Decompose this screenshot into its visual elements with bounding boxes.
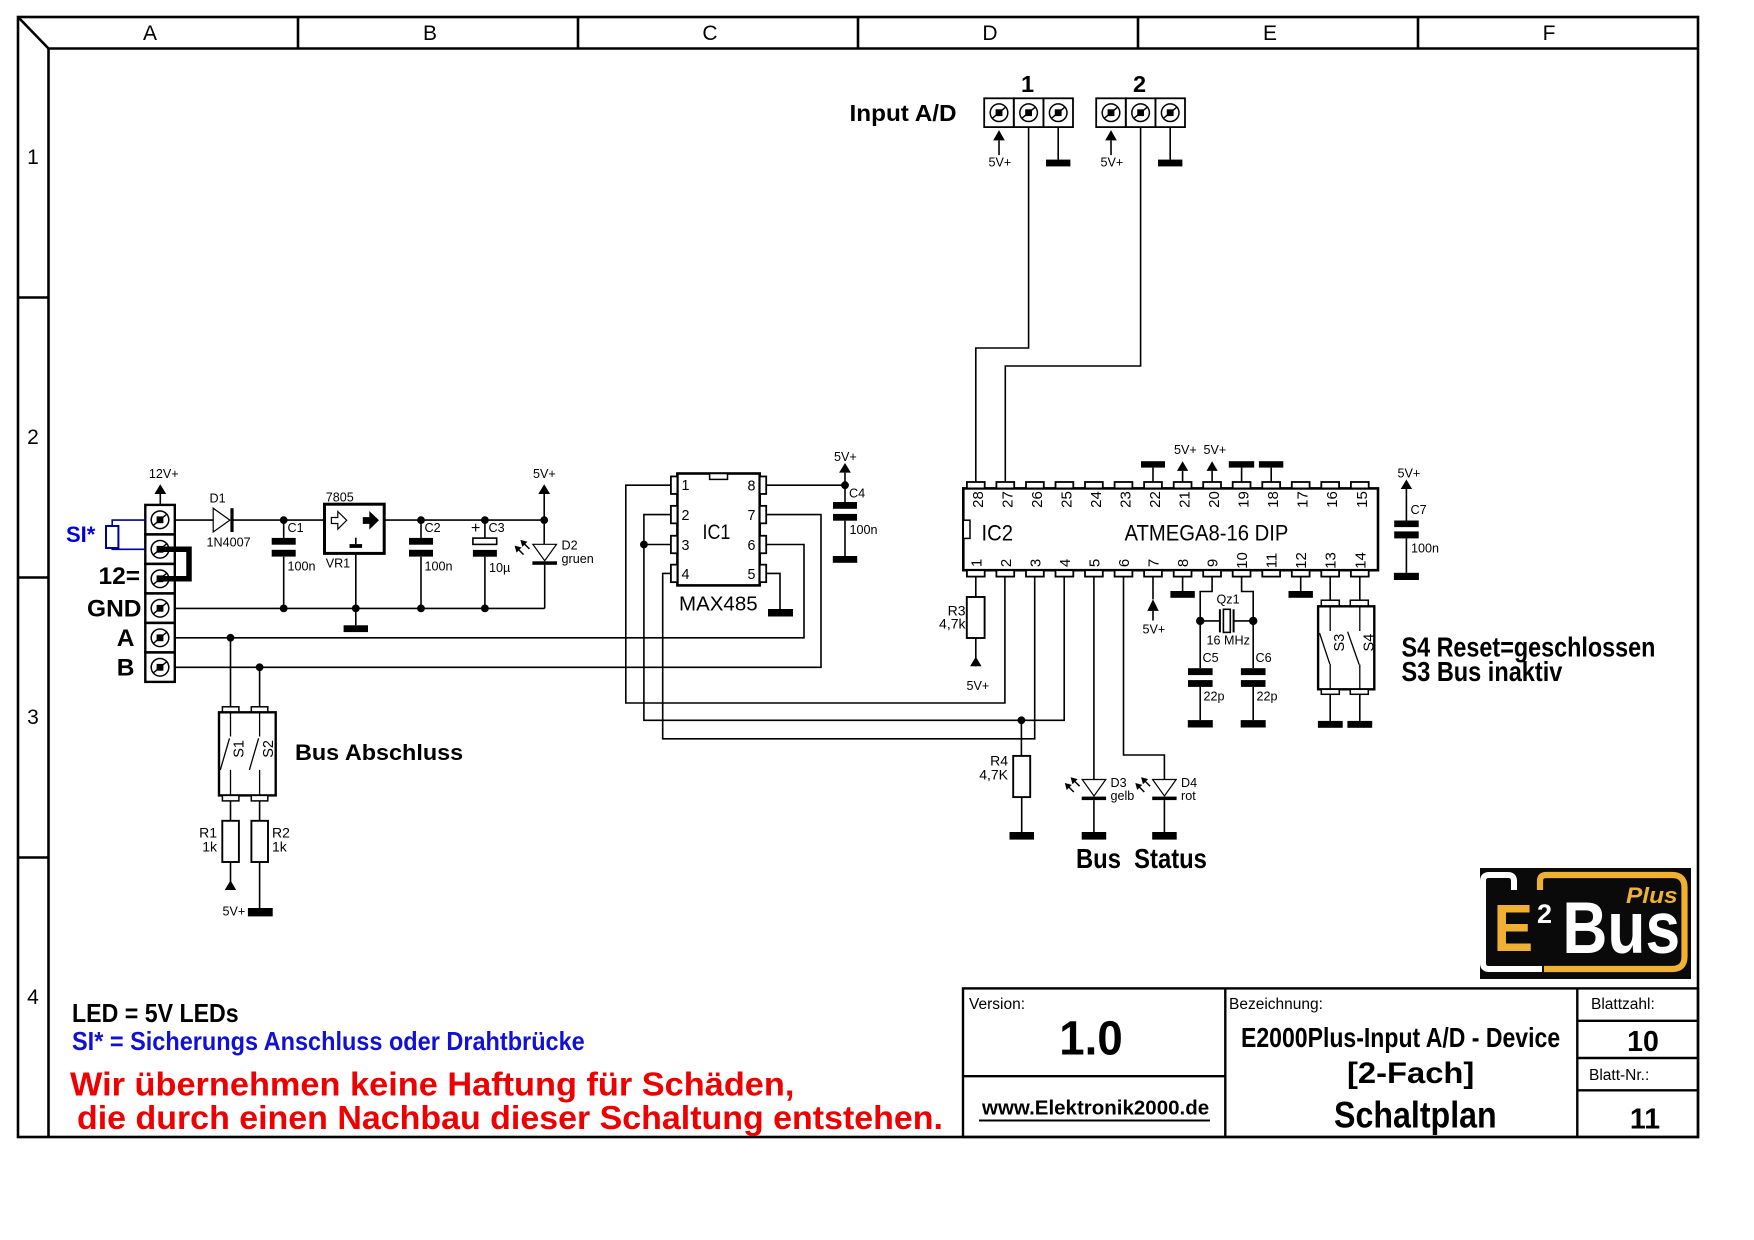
svg-text:Schaltplan: Schaltplan xyxy=(1334,1095,1497,1136)
svg-text:Bezeichnung:: Bezeichnung: xyxy=(1229,996,1323,1013)
svg-text:26: 26 xyxy=(1029,491,1046,508)
svg-text:VR1: VR1 xyxy=(326,557,351,571)
svg-text:1k: 1k xyxy=(272,839,288,855)
svg-text:16 MHz: 16 MHz xyxy=(1207,634,1250,648)
svg-text:SI* = Sicherungs Anschluss ode: SI* = Sicherungs Anschluss oder Drahtbrü… xyxy=(72,1028,585,1056)
svg-text:www.Elektronik2000.de: www.Elektronik2000.de xyxy=(981,1097,1209,1120)
svg-text:F: F xyxy=(1543,22,1556,45)
svg-text:[2-Fach]: [2-Fach] xyxy=(1347,1056,1474,1089)
svg-text:5: 5 xyxy=(748,567,756,583)
svg-text:C5: C5 xyxy=(1203,651,1219,665)
svg-text:5V+: 5V+ xyxy=(1101,156,1124,170)
svg-text:23: 23 xyxy=(1118,491,1135,508)
svg-text:11: 11 xyxy=(1630,1104,1660,1136)
svg-text:2: 2 xyxy=(1537,899,1552,929)
svg-text:25: 25 xyxy=(1058,491,1075,508)
svg-text:21: 21 xyxy=(1177,491,1194,508)
svg-text:5V+: 5V+ xyxy=(834,450,857,464)
svg-text:5V+: 5V+ xyxy=(1143,623,1166,637)
svg-text:4: 4 xyxy=(1057,559,1074,567)
svg-text:3: 3 xyxy=(682,538,690,554)
svg-text:4: 4 xyxy=(682,567,690,583)
svg-text:20: 20 xyxy=(1206,491,1223,508)
svg-text:1.0: 1.0 xyxy=(1059,1011,1122,1064)
svg-text:2: 2 xyxy=(27,426,39,449)
svg-text:2: 2 xyxy=(682,508,690,524)
svg-text:4: 4 xyxy=(27,986,39,1009)
svg-text:SI*: SI* xyxy=(66,522,96,547)
svg-text:10: 10 xyxy=(1627,1026,1659,1058)
svg-text:MAX485: MAX485 xyxy=(679,593,758,616)
svg-text:5: 5 xyxy=(1086,559,1103,567)
svg-text:S3: S3 xyxy=(1332,634,1348,652)
svg-text:IC1: IC1 xyxy=(703,521,731,545)
svg-text:5V+: 5V+ xyxy=(989,156,1012,170)
svg-text:gruen: gruen xyxy=(562,552,594,566)
svg-text:10µ: 10µ xyxy=(489,561,510,575)
svg-text:die durch einen Nachbau dieser: die durch einen Nachbau dieser Schaltung… xyxy=(77,1099,943,1137)
svg-text:C3: C3 xyxy=(489,521,505,535)
svg-text:C4: C4 xyxy=(849,487,865,501)
svg-text:18: 18 xyxy=(1265,491,1282,508)
svg-text:D4: D4 xyxy=(1181,776,1197,790)
svg-text:IC2: IC2 xyxy=(982,522,1013,546)
svg-text:Input A/D: Input A/D xyxy=(850,102,957,127)
svg-text:5V+: 5V+ xyxy=(1398,467,1421,481)
svg-text:5V+: 5V+ xyxy=(967,679,990,693)
svg-text:Version:: Version: xyxy=(969,996,1025,1013)
svg-text:gelb: gelb xyxy=(1111,789,1135,803)
svg-text:D1: D1 xyxy=(210,492,226,506)
svg-text:6: 6 xyxy=(748,538,756,554)
svg-text:3: 3 xyxy=(1027,559,1044,567)
svg-text:B: B xyxy=(423,22,437,45)
svg-text:1: 1 xyxy=(27,146,39,169)
svg-text:Blattzahl:: Blattzahl: xyxy=(1591,996,1655,1013)
svg-text:1: 1 xyxy=(968,559,985,567)
svg-text:E2000Plus-Input A/D - Device: E2000Plus-Input A/D - Device xyxy=(1241,1023,1560,1053)
svg-text:E: E xyxy=(1494,892,1534,966)
svg-text:5V+: 5V+ xyxy=(1174,443,1197,457)
svg-text:24: 24 xyxy=(1088,491,1105,508)
svg-text:12=: 12= xyxy=(98,563,140,590)
svg-text:10: 10 xyxy=(1234,552,1251,569)
svg-text:S3 Bus inaktiv: S3 Bus inaktiv xyxy=(1402,657,1564,687)
svg-text:C: C xyxy=(702,22,717,45)
svg-text:2: 2 xyxy=(998,559,1015,567)
svg-text:27: 27 xyxy=(999,491,1016,508)
svg-text:Qz1: Qz1 xyxy=(1217,593,1240,607)
svg-text:Wir übernehmen keine Haftung f: Wir übernehmen keine Haftung für Schäden… xyxy=(70,1066,794,1104)
svg-text:2: 2 xyxy=(1133,71,1146,97)
svg-text:9: 9 xyxy=(1205,559,1222,567)
svg-text:Blatt-Nr.:: Blatt-Nr.: xyxy=(1589,1067,1649,1084)
svg-text:E: E xyxy=(1263,22,1277,45)
svg-text:100n: 100n xyxy=(1411,542,1439,556)
svg-text:A: A xyxy=(117,625,135,652)
svg-text:S4: S4 xyxy=(1361,634,1377,652)
svg-text:B: B xyxy=(117,655,135,682)
svg-text:C7: C7 xyxy=(1411,503,1427,517)
svg-text:100n: 100n xyxy=(425,560,453,574)
svg-text:+: + xyxy=(471,520,480,537)
svg-text:100n: 100n xyxy=(288,560,316,574)
svg-text:7805: 7805 xyxy=(326,491,354,505)
svg-text:Plus: Plus xyxy=(1626,883,1678,908)
svg-text:D: D xyxy=(982,22,997,45)
svg-text:22p: 22p xyxy=(1204,690,1225,704)
svg-text:1N4007: 1N4007 xyxy=(207,536,251,550)
svg-text:16: 16 xyxy=(1324,491,1341,508)
svg-text:Bus Status: Bus Status xyxy=(1076,845,1207,875)
svg-text:5V+: 5V+ xyxy=(533,467,556,481)
svg-text:C6: C6 xyxy=(1256,651,1272,665)
svg-text:13: 13 xyxy=(1323,552,1340,569)
svg-text:17: 17 xyxy=(1295,491,1312,508)
svg-text:A: A xyxy=(143,22,157,45)
svg-text:8: 8 xyxy=(1175,559,1192,567)
svg-text:S1: S1 xyxy=(232,740,248,758)
svg-text:Bus Abschluss: Bus Abschluss xyxy=(295,740,463,765)
svg-text:12: 12 xyxy=(1293,552,1310,569)
svg-text:D3: D3 xyxy=(1111,776,1127,790)
svg-text:7: 7 xyxy=(748,508,756,524)
svg-text:3: 3 xyxy=(27,706,39,729)
svg-text:GND: GND xyxy=(87,596,141,623)
svg-text:8: 8 xyxy=(748,479,756,495)
svg-text:19: 19 xyxy=(1236,491,1253,508)
svg-text:15: 15 xyxy=(1354,491,1371,508)
svg-text:6: 6 xyxy=(1116,559,1133,567)
svg-text:14: 14 xyxy=(1352,552,1369,569)
svg-text:7: 7 xyxy=(1146,559,1163,567)
svg-text:1: 1 xyxy=(682,478,690,494)
svg-text:C1: C1 xyxy=(288,521,304,535)
svg-text:LED = 5V LEDs: LED = 5V LEDs xyxy=(72,1000,239,1029)
svg-text:1k: 1k xyxy=(202,839,218,855)
svg-text:4,7K: 4,7K xyxy=(979,767,1008,783)
svg-text:5V+: 5V+ xyxy=(223,905,246,919)
svg-text:5V+: 5V+ xyxy=(1204,443,1227,457)
svg-text:100n: 100n xyxy=(850,523,878,537)
svg-text:22p: 22p xyxy=(1257,690,1278,704)
svg-text:C2: C2 xyxy=(425,521,441,535)
svg-text:rot: rot xyxy=(1181,789,1196,803)
svg-text:ATMEGA8-16 DIP: ATMEGA8-16 DIP xyxy=(1125,521,1289,546)
svg-text:28: 28 xyxy=(970,491,987,508)
svg-text:S2: S2 xyxy=(261,740,277,758)
svg-text:D2: D2 xyxy=(562,539,578,553)
svg-text:4,7k: 4,7k xyxy=(939,616,966,632)
svg-text:11: 11 xyxy=(1264,553,1281,569)
svg-text:22: 22 xyxy=(1147,491,1164,508)
svg-text:1: 1 xyxy=(1021,71,1034,97)
svg-text:12V+: 12V+ xyxy=(149,467,179,481)
